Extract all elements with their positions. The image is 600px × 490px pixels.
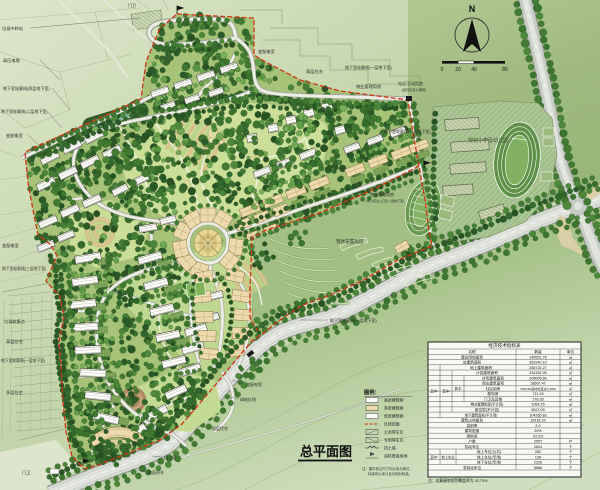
svg-text:㎡: ㎡ [569,386,573,391]
svg-text:268724.27: 268724.27 [529,366,546,370]
svg-text:挡土墙: 挡土墙 [164,454,176,460]
svg-text:(含社区办公用房): (含社区办公用房) [402,87,426,92]
svg-text:机动车位: 机动车位 [465,444,480,449]
svg-text:多层住宅: 多层住宅 [6,389,23,396]
svg-text:注：图中标注尺寸均以米为单位，: 注：图中标注尺寸均以米为单位， [362,466,413,471]
svg-text:362940.10: 362940.10 [529,361,546,365]
svg-text:㎡: ㎡ [569,370,573,375]
svg-text:80: 80 [502,67,508,73]
svg-text:0: 0 [441,67,444,73]
svg-text:总建筑面积: 总建筑面积 [463,360,482,365]
svg-text:配电房: 配电房 [487,391,498,396]
svg-text:门卫: 门卫 [128,2,136,8]
svg-text:个: 个 [569,460,573,465]
svg-text:户: 户 [569,439,573,444]
svg-text:5666: 5666 [534,466,542,470]
svg-text:总平面图: 总平面图 [300,444,352,459]
svg-text:物业管理用房: 物业管理用房 [370,191,394,197]
svg-text:其中: 其中 [442,389,450,394]
svg-text:28118.15: 28118.15 [530,419,545,423]
svg-text:20: 20 [455,67,461,73]
svg-text:户数: 户数 [468,439,476,444]
svg-text:物业管理用房(不计容): 物业管理用房(不计容) [471,402,504,407]
svg-text:地面停车: 地面停车 [148,469,164,475]
svg-text:个: 个 [569,465,573,470]
svg-text:㎡: ㎡ [569,407,573,412]
svg-text:2557: 2557 [534,440,542,444]
svg-text:高层建筑物: 高层建筑物 [384,398,404,403]
svg-text:注：估算建筑规划覆盖率为 32.75%: 注：估算建筑规划覆盖率为 32.75% [428,478,488,483]
svg-text:地下室轮廓线(一层地下室): 地下室轮廓线(一层地下室) [345,64,392,70]
svg-text:㎡: ㎡ [569,354,573,359]
svg-text:建筑密度: 建筑密度 [465,428,480,433]
svg-text:个: 个 [569,449,573,454]
svg-text:社区用房: 社区用房 [486,386,501,391]
svg-text:高层住宅: 高层住宅 [6,338,23,345]
svg-text:红线范围: 红线范围 [384,422,400,427]
svg-text:变配电室: 变配电室 [246,381,262,387]
svg-text:名称: 名称 [468,349,476,354]
svg-text:地下室轮廓线(二层地下室): 地下室轮廓线(二层地下室) [1,108,48,114]
svg-text:㎡: ㎡ [569,402,573,407]
svg-text:20%: 20% [534,429,542,433]
svg-text:㎡: ㎡ [569,391,573,396]
svg-text:40: 40 [471,67,477,73]
svg-text:㎡: ㎡ [569,396,573,401]
svg-text:现状安置房区: 现状安置房区 [336,238,364,245]
svg-text:门卫及其他: 门卫及其他 [484,396,503,401]
svg-text:㎡: ㎡ [569,360,573,365]
svg-text:㎡: ㎡ [569,412,573,417]
svg-text:挡土墙: 挡土墙 [384,446,396,451]
svg-text:高层住宅: 高层住宅 [306,68,323,75]
svg-text:物业管理用房: 物业管理用房 [356,83,381,90]
svg-text:(含小区主入口及二层地下室): (含小区主入口及二层地下室) [366,198,404,203]
svg-text:标高均以米计且为相对标高。: 标高均以米计且为相对标高。 [368,471,412,476]
svg-text:多层建筑物: 多层建筑物 [384,406,404,411]
svg-text:个: 个 [569,444,573,449]
svg-text:低层住宅: 低层住宅 [212,425,228,431]
svg-text:33.5%: 33.5% [533,434,544,438]
svg-text:1539.68(其中社区办公600): 1539.68(其中社区办公600) [520,386,556,391]
svg-text:其中: 其中 [430,454,438,459]
svg-text:绿地红线: 绿地红线 [240,396,256,402]
svg-text:商业建筑面积: 商业建筑面积 [482,381,504,386]
svg-text:㎡: ㎡ [569,365,573,370]
svg-text:地下建筑面积(不计容): 地下建筑面积(不计容) [465,412,498,417]
svg-text:地下车位(专用): 地下车位(专用) [477,460,502,465]
svg-text:门卫: 门卫 [22,469,30,476]
svg-text:18667.47: 18667.47 [530,382,545,386]
svg-text:711.18: 711.18 [532,392,543,396]
svg-text:变配电室: 变配电室 [2,242,19,249]
svg-text:地上建筑面积: 地上建筑面积 [470,365,492,370]
svg-text:建筑占地面积: 建筑占地面积 [461,418,483,423]
svg-text:经济技术指标表: 经济技术指标表 [488,342,521,349]
svg-text:数量: 数量 [534,349,542,354]
svg-text:N: N [469,4,476,14]
svg-text:社区活动用房: 社区活动用房 [398,80,423,87]
svg-text:规划小学及幼儿园: 规划小学及幼儿园 [468,137,508,144]
svg-text:地上车位: 地上车位 [441,454,455,459]
svg-text:图例：: 图例： [364,388,380,396]
svg-text:垃圾中转站: 垃圾中转站 [2,25,23,32]
svg-text:住宅建筑面积: 住宅建筑面积 [482,375,504,380]
svg-text:绿地率: 绿地率 [466,433,477,438]
svg-text:㎡: ㎡ [569,418,573,423]
svg-text:公共停车位: 公共停车位 [384,430,404,435]
svg-text:178.36: 178.36 [532,397,543,401]
svg-text:计容建筑面积: 计容建筑面积 [476,370,498,375]
svg-text:个: 个 [569,454,573,459]
svg-text:262: 262 [535,450,541,454]
svg-text:变配电室: 变配电室 [6,132,23,139]
svg-text:140551.76: 140551.76 [529,355,546,359]
svg-text:消防登高场地: 消防登高场地 [384,454,407,459]
svg-text:其中: 其中 [454,386,462,391]
svg-text:高压电缆: 高压电缆 [3,57,21,64]
svg-text:低层建筑物: 低层建筑物 [384,414,404,419]
svg-text:非机动车位: 非机动车位 [463,465,482,470]
svg-text:地下室轮廓线(一层地下室): 地下室轮廓线(一层地下室) [1,358,46,363]
svg-text:其中: 其中 [430,389,438,394]
svg-text:垃圾收集点: 垃圾收集点 [4,318,25,325]
svg-text:㎡: ㎡ [569,375,573,380]
svg-text:2824: 2824 [534,445,542,449]
svg-text:地上车位(专用): 地上车位(专用) [477,454,502,459]
svg-text:2.0: 2.0 [535,424,540,428]
svg-text:136: 136 [535,455,541,459]
svg-text:6527.09: 6527.09 [531,408,544,412]
svg-text:地上车位(公共): 地上车位(公共) [477,449,502,454]
svg-text:104265.83: 104265.83 [529,413,546,417]
svg-text:地下室轮廓线(一层地下室): 地下室轮廓线(一层地下室) [384,128,431,134]
svg-text:2226: 2226 [534,461,542,465]
svg-text:261182.95: 261182.95 [529,371,546,375]
svg-text:变配电室: 变配电室 [258,48,275,55]
svg-text:地下室轮廓线(四层地下室): 地下室轮廓线(四层地下室) [3,85,50,91]
svg-text:地下室轮廓线(一层地下室): 地下室轮廓线(一层地下室) [330,317,377,323]
svg-text:单位: 单位 [567,349,575,354]
svg-text:容积率: 容积率 [466,423,477,428]
svg-text:专用停车位: 专用停车位 [384,438,404,443]
svg-text:地下室轮廓线(三层地下室): 地下室轮廓线(三层地下室) [2,266,47,271]
svg-text:架空层(不计容): 架空层(不计容) [475,407,500,412]
svg-text:1064.25: 1064.25 [531,403,544,407]
svg-text:建设用地面积: 建设用地面积 [461,354,483,359]
svg-text:206005.60: 206005.60 [529,376,546,380]
svg-text:㎡: ㎡ [569,381,573,386]
